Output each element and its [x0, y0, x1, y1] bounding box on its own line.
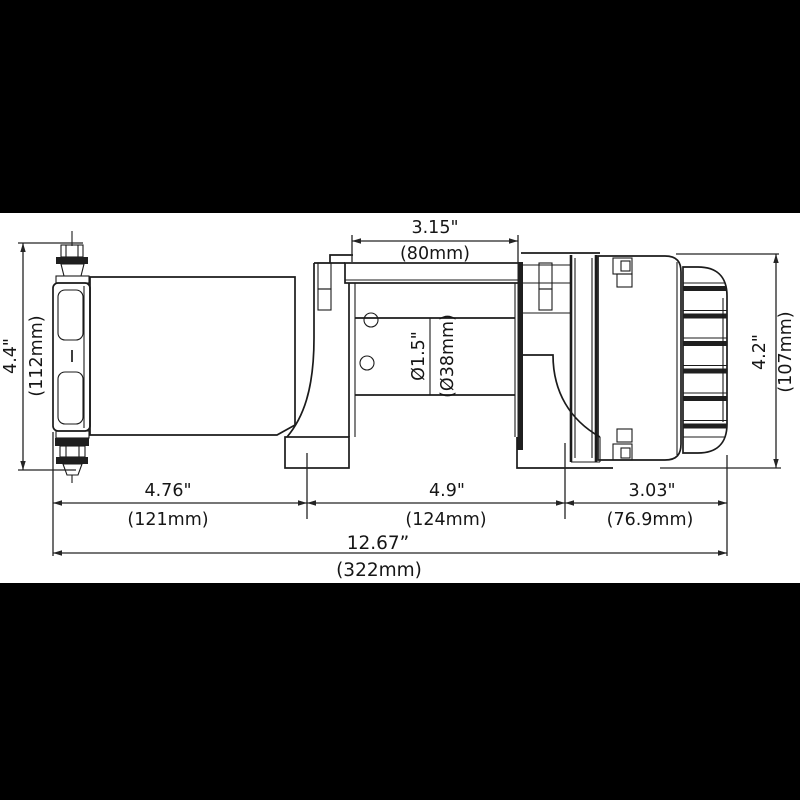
dim-motor-length-mm: (121mm): [127, 510, 208, 530]
dim-motor-length-inches: 4.76": [144, 481, 191, 501]
right-drum-flange: [518, 262, 524, 450]
dim-drum-diameter-inches: Ø1.5": [409, 331, 429, 381]
winch-technical-drawing: Ø1.5" (Ø38mm): [0, 0, 800, 800]
letterbox-top: [0, 0, 800, 213]
dim-height-left-inches: 4.4": [1, 338, 21, 374]
dim-center-length-mm: (124mm): [405, 510, 486, 530]
letterbox-bottom: [0, 583, 800, 800]
dim-height-right-inches: 4.2": [750, 334, 770, 370]
dim-overall-length-mm: (322mm): [336, 560, 422, 581]
dim-gear-length-inches: 3.03": [628, 481, 675, 501]
dim-gear-length-mm: (76.9mm): [607, 510, 694, 530]
screenshot-canvas: Ø1.5" (Ø38mm): [0, 0, 800, 800]
dim-drum-diameter-mm: (Ø38mm): [438, 314, 458, 398]
dim-overall-length-inches: 12.67”: [347, 533, 410, 554]
dim-height-left-mm: (112mm): [27, 315, 47, 396]
dim-center-length-inches: 4.9": [429, 481, 465, 501]
dim-drum-width-mm: (80mm): [400, 244, 470, 264]
dim-drum-width-inches: 3.15": [411, 218, 458, 238]
dim-height-right-mm: (107mm): [776, 311, 796, 392]
